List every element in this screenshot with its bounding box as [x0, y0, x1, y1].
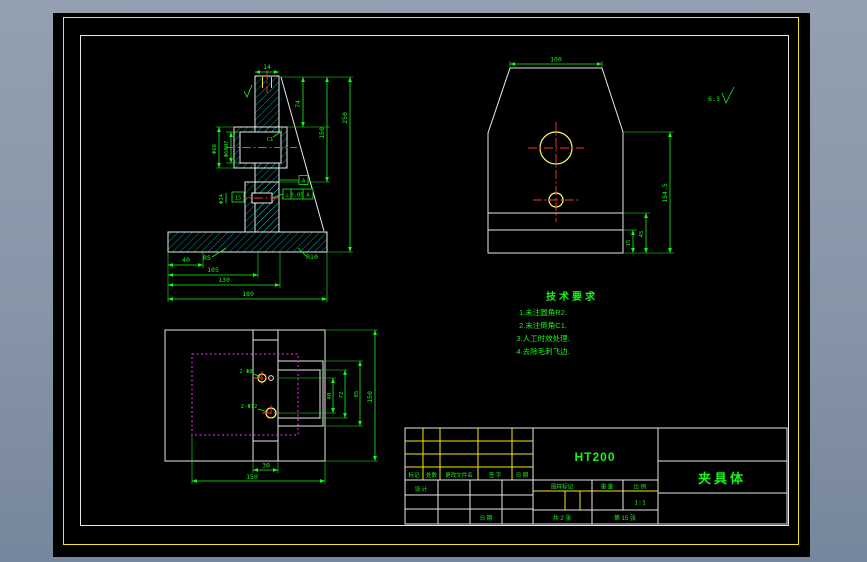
drawing-viewport[interactable]: [53, 13, 810, 557]
cad-application-window: 14 74 150 250 Φ68 Φ60H7 Φ14 15 C1 40 105…: [0, 0, 867, 562]
sheet-border-inner: [80, 35, 789, 526]
